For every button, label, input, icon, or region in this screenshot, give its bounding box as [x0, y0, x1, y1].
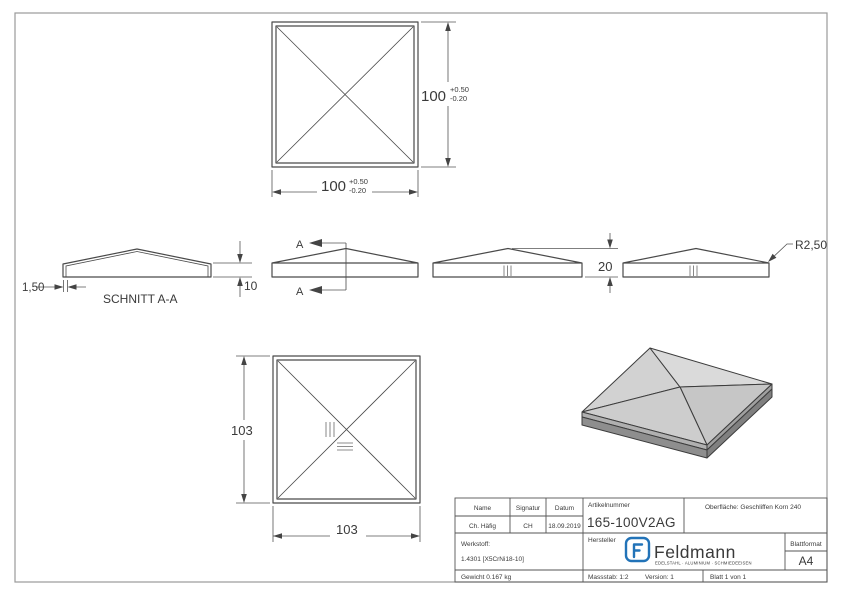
value-blattformat: A4 [799, 554, 814, 568]
value-massstab: Massstab: 1:2 [588, 574, 629, 581]
top-view-diagonals [277, 27, 413, 162]
dim-height-tol-plus: +0.50 [450, 85, 469, 94]
value-signatur: CH [523, 523, 533, 530]
header-datum: Datum [555, 505, 574, 512]
value-version: Version: 1 [645, 574, 674, 581]
value-werkstoff: 1.4301 [X5CrNi18-10] [461, 556, 524, 563]
label-artikelnummer: Artikelnummer [588, 502, 631, 509]
section-view: 1,50 10 SCHNITT A-A [22, 241, 258, 306]
value-gewicht: Gewicht 0.167 kg [461, 574, 512, 581]
dim-outer-width-103: 103 [336, 522, 358, 537]
dim-wall-thickness: 1,50 [22, 282, 44, 294]
dim-corner-radius: R2,50 [795, 238, 827, 252]
title-block: Name Signatur Datum Ch. Häfig CH 18.09.2… [455, 498, 827, 582]
value-artikelnummer: 165-100V2AG [587, 515, 676, 530]
dim-width-tol-minus: -0.20 [349, 186, 366, 195]
grinding-mark [690, 266, 697, 277]
value-blatt: Blatt 1 von 1 [710, 574, 747, 581]
section-label: SCHNITT A-A [103, 292, 177, 306]
header-signatur: Signatur [516, 505, 541, 512]
dim-height-tol-minus: -0.20 [450, 94, 467, 103]
front-view-outline [272, 249, 418, 278]
grinding-mark [504, 266, 511, 277]
dim-skirt-height: 10 [244, 279, 258, 293]
side-view-height: 20 [433, 233, 618, 293]
logo-f-glyph [634, 545, 642, 558]
front-view: A A [272, 239, 418, 298]
top-view: 100 +0.50 -0.20 100 +0.50 -0.20 [272, 22, 469, 197]
side-view-radius: R2,50 [623, 238, 827, 277]
bottom-view: 103 103 [231, 356, 420, 542]
label-blattformat: Blattformat [790, 541, 822, 548]
label-hersteller: Hersteller [588, 537, 617, 544]
section-letter-bottom: A [296, 286, 304, 298]
section-dimension-arrows [55, 254, 243, 290]
logo-tagline: EDELSTAHL · ALUMINIUM · SCHMIEDEEISEN [655, 561, 752, 566]
section-outline [63, 249, 211, 277]
radius-leader-line [775, 244, 794, 256]
dim-width-tol-plus: +0.50 [349, 177, 368, 186]
value-name: Ch. Häfig [469, 523, 496, 530]
logo-brand-text: Feldmann [654, 542, 736, 562]
header-name: Name [474, 505, 492, 512]
dim-height-100: 100 [421, 88, 446, 105]
bottom-view-diagonals [278, 361, 415, 498]
section-arrow-lines [322, 243, 346, 290]
radius-view-outline [623, 249, 769, 278]
value-oberflaeche: Oberfläche: Geschliffen Korn 240 [705, 504, 801, 511]
section-arrowheads [309, 239, 322, 294]
section-dimension-lines [36, 241, 252, 297]
section-letter-top: A [296, 239, 304, 251]
value-datum: 18.09.2019 [548, 523, 581, 530]
top-view-dimension-arrows [272, 22, 451, 195]
section-inner-wall [66, 252, 208, 278]
dim-outer-height-103: 103 [231, 423, 253, 438]
cad-drawing: 100 +0.50 -0.20 100 +0.50 -0.20 1,50 10 … [0, 0, 842, 595]
top-view-dimension-lines [272, 22, 456, 197]
dim-width-100: 100 [321, 178, 346, 195]
dim-total-height: 20 [598, 259, 612, 274]
drawing-sheet: 100 +0.50 -0.20 100 +0.50 -0.20 1,50 10 … [0, 0, 842, 595]
label-werkstoff: Werkstoff: [461, 541, 490, 548]
isometric-view [582, 348, 772, 458]
feldmann-logo: Feldmann EDELSTAHL · ALUMINIUM · SCHMIED… [626, 538, 752, 566]
bottom-view-dimension-arrows [241, 356, 420, 539]
